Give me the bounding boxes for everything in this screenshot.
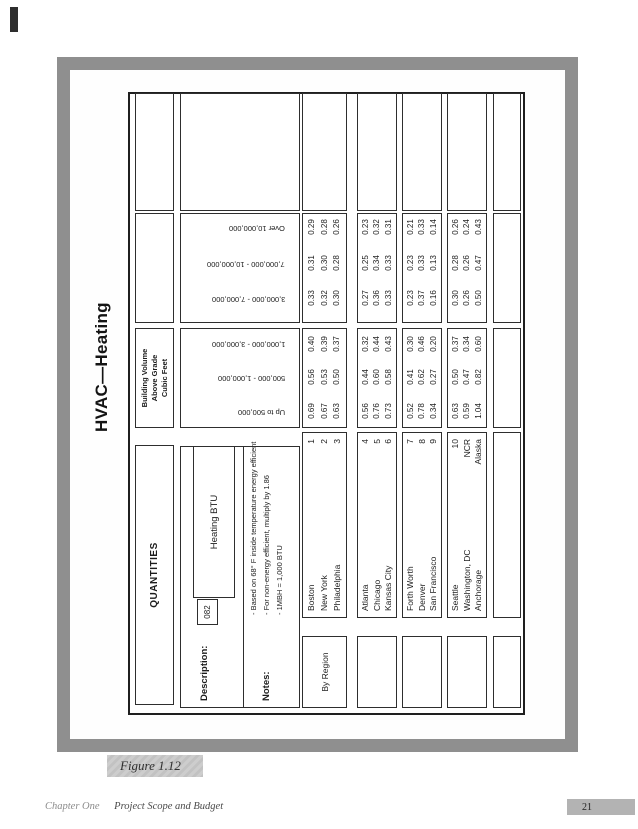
value-column: 0.560.530.50 <box>303 361 346 393</box>
values-cell-high: 0.330.320.300.310.300.280.290.280.26 <box>302 213 347 323</box>
value: 0.69 <box>308 403 316 419</box>
description-code-box: 082 <box>197 599 218 625</box>
value-column: 0.330.320.30 <box>303 282 346 314</box>
value: 0.33 <box>308 290 316 306</box>
volume-column-label: 7,000,000 - 10,000,000 <box>207 260 285 269</box>
volume-column-label: 500,000 - 1,000,000 <box>218 374 285 383</box>
value-column: 0.280.260.47 <box>448 247 486 279</box>
value: 0.33 <box>418 219 426 235</box>
value: 0.50 <box>452 369 460 385</box>
value: 0.20 <box>430 336 438 352</box>
volume-column-label: 1,000,000 - 3,000,000 <box>212 340 285 349</box>
value: 0.34 <box>430 403 438 419</box>
value: 0.28 <box>333 255 341 271</box>
city-name: Philadelphia <box>333 565 342 611</box>
worksheet-title: HVAC—Heating <box>92 302 112 432</box>
rotated-worksheet: HVAC—Heating QUANTITIES Building Volume … <box>88 92 525 715</box>
figure-caption: Figure 1.12 <box>107 755 203 777</box>
value: 0.37 <box>452 336 460 352</box>
value: 0.33 <box>418 255 426 271</box>
value-column: 0.270.360.33 <box>358 282 396 314</box>
value: 0.60 <box>475 336 483 352</box>
value-column: 0.310.300.28 <box>303 247 346 279</box>
volume-column-label: Over 10,000,000 <box>229 224 285 233</box>
page-number-badge: 21 <box>567 799 635 815</box>
value-column: 0.500.470.82 <box>448 361 486 393</box>
description-notes-cell: Description: 082 Heating BTU Notes: - Ba… <box>180 446 300 708</box>
value: 0.44 <box>362 369 370 385</box>
value: 0.26 <box>463 255 471 271</box>
value: 0.44 <box>373 336 381 352</box>
value-column: 0.690.670.63 <box>303 395 346 427</box>
description-item-box: Heating BTU <box>193 446 235 598</box>
volume-columns-cell-low: Up to 500,000500,000 - 1,000,0001,000,00… <box>180 328 300 428</box>
value: 0.37 <box>418 290 426 306</box>
value: 0.33 <box>385 255 393 271</box>
region-label-blank-cell <box>402 636 442 708</box>
city-name: Forth Worth <box>406 566 415 611</box>
city-code: 8 <box>418 439 427 444</box>
value: 0.28 <box>452 255 460 271</box>
value: 0.47 <box>463 369 471 385</box>
volume-columns-cell-high: 3,000,000 - 7,000,0007,000,000 - 10,000,… <box>180 213 300 323</box>
value-column: 0.560.760.73 <box>358 395 396 427</box>
city-row: Chicago5 <box>373 433 382 617</box>
values-cell-low: 0.560.760.730.440.600.580.320.440.43 <box>357 328 397 428</box>
value: 0.26 <box>333 219 341 235</box>
notes-label: Notes: <box>261 671 272 701</box>
value: 0.73 <box>385 403 393 419</box>
value: 0.21 <box>407 219 415 235</box>
form-table: QUANTITIES Building Volume Above Grade C… <box>128 92 525 715</box>
value: 0.30 <box>321 255 329 271</box>
city-row: AnchorageAlaska <box>474 433 483 617</box>
note-line: - For non-energy efficient, multiply by … <box>262 475 271 615</box>
value-column: 0.250.340.33 <box>358 247 396 279</box>
value: 0.60 <box>373 369 381 385</box>
city-row: Seattle10 <box>451 433 460 617</box>
value: 0.67 <box>321 403 329 419</box>
value: 0.14 <box>430 219 438 235</box>
region-label-blank-cell <box>493 636 521 708</box>
city-name: Denver <box>418 584 427 611</box>
city-name: Anchorage <box>474 570 483 611</box>
city-row: Washington, DCNCR <box>463 433 472 617</box>
value-column: 0.630.591.04 <box>448 395 486 427</box>
bv-line-3: Cubic Feet <box>160 359 170 397</box>
bv-line-1: Building Volume <box>140 349 150 408</box>
region-label-blank-cell <box>447 636 487 708</box>
row-blank-cell-right <box>357 93 397 211</box>
value: 0.25 <box>362 255 370 271</box>
city-code: 1 <box>307 439 316 444</box>
value: 0.78 <box>418 403 426 419</box>
city-name: Seattle <box>451 585 460 611</box>
row-blank-cell-right <box>402 93 442 211</box>
value: 0.62 <box>418 369 426 385</box>
value-column: 0.370.340.60 <box>448 328 486 360</box>
value: 0.43 <box>385 336 393 352</box>
row-blank-cell-right <box>447 93 487 211</box>
value: 0.31 <box>308 255 316 271</box>
city-group-cell: Forth Worth7Denver8San Francisco9 <box>402 432 442 618</box>
value: 0.34 <box>373 255 381 271</box>
value-column: 0.410.620.27 <box>403 361 441 393</box>
bv-line-2: Above Grade <box>150 355 160 402</box>
values-cell-high: 0.270.360.330.250.340.330.230.320.31 <box>357 213 397 323</box>
value: 0.23 <box>362 219 370 235</box>
city-row: Philadelphia3 <box>333 433 342 617</box>
header-blank-cell-right <box>135 93 174 211</box>
value: 0.43 <box>475 219 483 235</box>
building-volume-header-cell: Building Volume Above Grade Cubic Feet <box>135 328 174 428</box>
value-column: 0.520.780.34 <box>403 395 441 427</box>
value: 0.16 <box>430 290 438 306</box>
value: 0.32 <box>321 290 329 306</box>
city-name: Washington, DC <box>463 549 472 611</box>
value-column: 0.300.260.50 <box>448 282 486 314</box>
value: 0.50 <box>333 369 341 385</box>
city-code: NCR <box>463 439 472 457</box>
value: 0.32 <box>362 336 370 352</box>
values-cell-high: 0.230.370.160.230.330.130.210.330.14 <box>402 213 442 323</box>
value: 0.56 <box>362 403 370 419</box>
city-row: Denver8 <box>418 433 427 617</box>
city-row: Boston1 <box>307 433 316 617</box>
city-row: New York2 <box>320 433 329 617</box>
value: 0.26 <box>452 219 460 235</box>
value: 0.27 <box>430 369 438 385</box>
value: 0.76 <box>373 403 381 419</box>
value: 0.24 <box>463 219 471 235</box>
region-label-blank-cell <box>357 636 397 708</box>
value: 0.63 <box>333 403 341 419</box>
value: 0.41 <box>407 369 415 385</box>
value: 0.23 <box>407 290 415 306</box>
value-column: 0.440.600.58 <box>358 361 396 393</box>
value: 0.33 <box>385 290 393 306</box>
city-code: Alaska <box>474 439 483 465</box>
city-code: 7 <box>406 439 415 444</box>
city-group-cell: Atlanta4Chicago5Kansas City6 <box>357 432 397 618</box>
city-group-cell: Boston1New York2Philadelphia3 <box>302 432 347 618</box>
city-group-cell: Seattle10Washington, DCNCRAnchorageAlask… <box>447 432 487 618</box>
city-code: 9 <box>429 439 438 444</box>
value-column: 0.260.240.43 <box>448 211 486 243</box>
city-code: 2 <box>320 439 329 444</box>
values-cell-low: 0.520.780.340.410.620.270.300.460.20 <box>402 328 442 428</box>
city-row: Forth Worth7 <box>406 433 415 617</box>
scanned-book-page: { "page": { "title": "HVAC—Heating", "fi… <box>0 0 638 829</box>
value: 0.39 <box>321 336 329 352</box>
scan-registration-mark <box>10 7 18 32</box>
by-region-label-cell: By Region <box>302 636 347 708</box>
footer-chapter: Chapter One <box>45 801 100 812</box>
city-group-blank-cell <box>493 432 521 618</box>
city-code: 4 <box>361 439 370 444</box>
header-blank-cell <box>135 213 174 323</box>
value-column: 0.300.460.20 <box>403 328 441 360</box>
value: 0.29 <box>308 219 316 235</box>
city-name: Kansas City <box>384 566 393 611</box>
value: 0.26 <box>463 290 471 306</box>
city-row: San Francisco9 <box>429 433 438 617</box>
values-cell-high-blank <box>493 213 521 323</box>
description-notes-divider <box>243 447 244 707</box>
value: 0.34 <box>463 336 471 352</box>
city-code: 5 <box>373 439 382 444</box>
city-code: 10 <box>451 439 460 448</box>
volume-column-label: 3,000,000 - 7,000,000 <box>212 295 285 304</box>
note-line: - Based on 68° F inside temperature ener… <box>249 442 258 615</box>
city-name: Boston <box>307 585 316 611</box>
value: 0.52 <box>407 403 415 419</box>
quantities-header-cell: QUANTITIES <box>135 445 174 705</box>
city-list: Boston1New York2Philadelphia3 <box>303 433 346 617</box>
value: 0.82 <box>475 369 483 385</box>
city-list: Forth Worth7Denver8San Francisco9 <box>403 433 441 617</box>
value: 0.59 <box>463 403 471 419</box>
values-cell-high: 0.300.260.500.280.260.470.260.240.43 <box>447 213 487 323</box>
value-column: 0.230.320.31 <box>358 211 396 243</box>
city-list: Seattle10Washington, DCNCRAnchorageAlask… <box>448 433 486 617</box>
note-line: - 1MBH = 1,000 BTU <box>275 545 284 615</box>
city-list: Atlanta4Chicago5Kansas City6 <box>358 433 396 617</box>
value: 0.56 <box>308 369 316 385</box>
value: 0.28 <box>321 219 329 235</box>
value: 0.37 <box>333 336 341 352</box>
value: 0.63 <box>452 403 460 419</box>
value-column: 0.400.390.37 <box>303 328 346 360</box>
values-cell-low-blank <box>493 328 521 428</box>
city-code: 6 <box>384 439 393 444</box>
page-footer: Chapter One Project Scope and Budget <box>45 801 223 812</box>
value: 1.04 <box>475 403 483 419</box>
city-code: 3 <box>333 439 342 444</box>
city-name: Chicago <box>373 580 382 611</box>
value: 0.30 <box>333 290 341 306</box>
values-cell-low: 0.630.591.040.500.470.820.370.340.60 <box>447 328 487 428</box>
footer-section: Project Scope and Budget <box>114 801 223 812</box>
row2-blank-cell-right <box>180 93 300 211</box>
value: 0.30 <box>407 336 415 352</box>
value: 0.30 <box>452 290 460 306</box>
city-name: Atlanta <box>361 585 370 611</box>
value-column: 0.290.280.26 <box>303 211 346 243</box>
value: 0.58 <box>385 369 393 385</box>
city-name: New York <box>320 575 329 611</box>
value-column: 0.320.440.43 <box>358 328 396 360</box>
city-row: Atlanta4 <box>361 433 370 617</box>
value-column: 0.230.330.13 <box>403 247 441 279</box>
volume-column-label: Up to 500,000 <box>238 408 285 417</box>
value: 0.23 <box>407 255 415 271</box>
row-blank-cell-right <box>302 93 347 211</box>
value-column: 0.210.330.14 <box>403 211 441 243</box>
city-name: San Francisco <box>429 557 438 611</box>
value: 0.46 <box>418 336 426 352</box>
value: 0.27 <box>362 290 370 306</box>
values-cell-low: 0.690.670.630.560.530.500.400.390.37 <box>302 328 347 428</box>
description-label: Description: <box>199 646 210 701</box>
value: 0.32 <box>373 219 381 235</box>
city-row: Kansas City6 <box>384 433 393 617</box>
value: 0.13 <box>430 255 438 271</box>
value: 0.50 <box>475 290 483 306</box>
value: 0.47 <box>475 255 483 271</box>
value: 0.36 <box>373 290 381 306</box>
row-blank-cell-right <box>493 93 521 211</box>
value: 0.31 <box>385 219 393 235</box>
value-column: 0.230.370.16 <box>403 282 441 314</box>
value: 0.40 <box>308 336 316 352</box>
value: 0.53 <box>321 369 329 385</box>
